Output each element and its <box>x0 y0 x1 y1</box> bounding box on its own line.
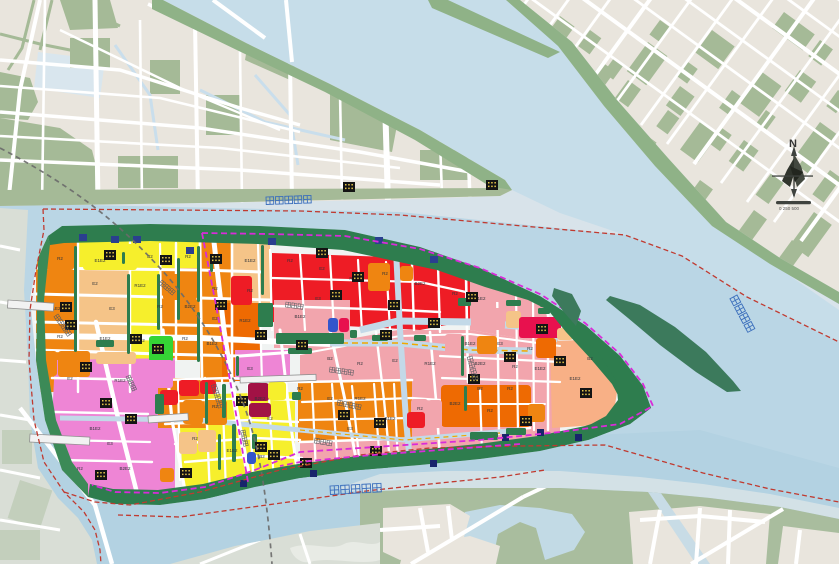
svg-text:R2: R2 <box>512 364 518 369</box>
svg-text:B2E2: B2E2 <box>474 361 486 366</box>
svg-text:N: N <box>789 138 797 150</box>
svg-text:E2: E2 <box>267 416 273 421</box>
svg-text:R2: R2 <box>527 346 533 351</box>
svg-text:E3: E3 <box>497 341 503 346</box>
svg-text:B1E2: B1E2 <box>294 314 306 319</box>
svg-text:R2: R2 <box>452 291 458 296</box>
svg-text:B2E2: B2E2 <box>184 304 196 309</box>
svg-text:R1E2: R1E2 <box>424 361 436 366</box>
svg-text:0 250 500: 0 250 500 <box>779 206 800 211</box>
svg-text:E2: E2 <box>67 376 73 381</box>
svg-text:R2: R2 <box>157 304 163 309</box>
svg-text:R2: R2 <box>507 386 513 391</box>
svg-text:B2E2: B2E2 <box>119 466 131 471</box>
svg-text:B2E2: B2E2 <box>449 401 461 406</box>
svg-text:E1E2: E1E2 <box>226 448 238 453</box>
svg-text:R2: R2 <box>297 386 303 391</box>
svg-text:B2: B2 <box>477 386 483 391</box>
svg-text:R1E2: R1E2 <box>354 396 366 401</box>
svg-text:E1E2: E1E2 <box>99 336 111 341</box>
svg-text:E3: E3 <box>315 296 321 301</box>
svg-text:B2E2: B2E2 <box>414 281 426 286</box>
svg-text:R1E2: R1E2 <box>134 283 146 288</box>
svg-text:B1E2: B1E2 <box>384 416 396 421</box>
svg-text:R2: R2 <box>185 254 191 259</box>
svg-text:R2: R2 <box>382 271 388 276</box>
svg-text:B2: B2 <box>327 356 333 361</box>
svg-text:E3: E3 <box>347 426 353 431</box>
svg-text:E2: E2 <box>392 358 398 363</box>
svg-text:E2: E2 <box>92 281 98 286</box>
svg-text:B2: B2 <box>259 454 265 459</box>
svg-text:R2: R2 <box>57 334 63 339</box>
svg-text:R2: R2 <box>487 408 493 413</box>
svg-text:R2: R2 <box>247 288 253 293</box>
svg-text:E2: E2 <box>327 396 333 401</box>
svg-text:E1E2: E1E2 <box>569 376 581 381</box>
svg-text:E3: E3 <box>109 306 115 311</box>
svg-text:R2: R2 <box>182 336 188 341</box>
svg-text:R1E2: R1E2 <box>114 378 126 383</box>
svg-text:E1E2: E1E2 <box>534 366 546 371</box>
svg-text:E3: E3 <box>247 366 253 371</box>
svg-text:B2E2: B2E2 <box>254 396 266 401</box>
svg-text:R2: R2 <box>357 361 363 366</box>
svg-text:R2: R2 <box>417 406 423 411</box>
svg-text:B2: B2 <box>587 356 593 361</box>
svg-text:R1E2: R1E2 <box>239 318 251 323</box>
svg-text:R2: R2 <box>77 466 83 471</box>
svg-text:R2: R2 <box>287 258 293 263</box>
svg-text:E2: E2 <box>212 316 218 321</box>
svg-text:R2: R2 <box>192 436 198 441</box>
svg-text:R2: R2 <box>57 256 63 261</box>
svg-text:E2: E2 <box>319 266 325 271</box>
svg-text:E1E2: E1E2 <box>244 258 256 263</box>
svg-text:E3: E3 <box>107 441 113 446</box>
svg-text:B1E2: B1E2 <box>206 341 218 346</box>
svg-text:B1E2: B1E2 <box>89 426 101 431</box>
svg-text:B1E2: B1E2 <box>464 341 476 346</box>
